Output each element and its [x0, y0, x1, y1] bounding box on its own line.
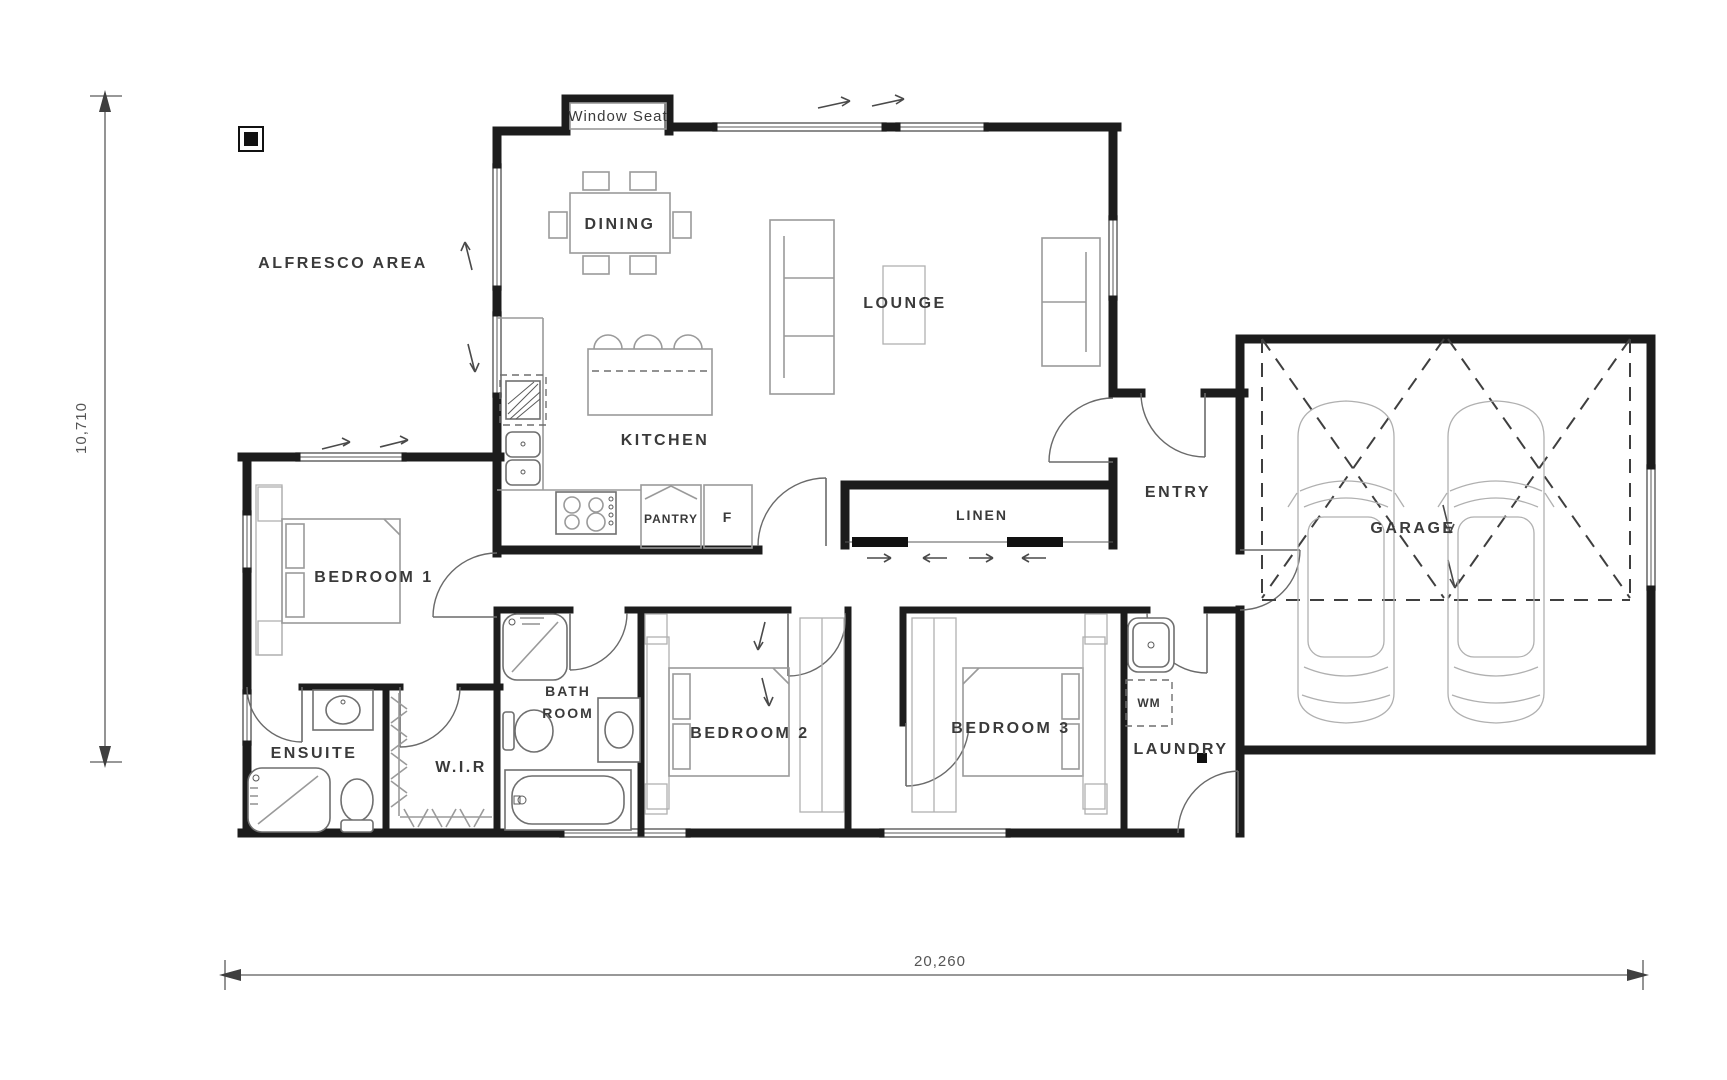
car-icon: [1288, 401, 1404, 723]
kitchen-island: [588, 335, 712, 415]
floor-plan-page: 10,710 20,260: [0, 0, 1727, 1080]
ensuite-label: ENSUITE: [271, 745, 358, 762]
wir-label: W.I.R: [435, 759, 487, 776]
bathroom-label-line2: ROOM: [542, 705, 594, 721]
width-dimension: 20,260: [914, 953, 966, 970]
garage-cars: [1288, 401, 1554, 723]
washing-machine-label: WM: [1137, 696, 1160, 710]
floor-plan-drawing: 10,710 20,260: [0, 0, 1727, 1080]
kitchen-label: KITCHEN: [621, 432, 710, 449]
bedroom3-furniture: [912, 614, 1107, 814]
bathroom-fixtures: [503, 614, 640, 830]
alfresco-label: ALFRESCO AREA: [258, 255, 428, 272]
bedroom1-label: BEDROOM 1: [314, 569, 433, 586]
walls: [239, 99, 1651, 833]
height-dimension: 10,710: [73, 402, 90, 454]
bedroom2-furniture: [645, 614, 844, 814]
lounge-label: LOUNGE: [863, 295, 946, 312]
linen-label: LINEN: [956, 507, 1008, 523]
entry-label: ENTRY: [1145, 484, 1211, 501]
pantry-label: PANTRY: [644, 512, 698, 526]
dining-label: DINING: [585, 216, 656, 233]
fridge-label: F: [723, 509, 734, 525]
garage-door-symbol: [1262, 339, 1630, 600]
car-icon: [1438, 401, 1554, 723]
garage-label: GARAGE: [1370, 520, 1455, 537]
window-seat-label: Window Seat: [568, 108, 667, 125]
bedroom3-label: BEDROOM 3: [951, 720, 1070, 737]
bathroom-label-line1: BATH: [545, 683, 591, 699]
bedroom2-label: BEDROOM 2: [690, 725, 809, 742]
room-labels: Window Seat ALFRESCO AREA DINING LOUNGE …: [258, 108, 1455, 776]
windows: [243, 123, 1655, 837]
laundry-label: LAUNDRY: [1133, 741, 1228, 758]
